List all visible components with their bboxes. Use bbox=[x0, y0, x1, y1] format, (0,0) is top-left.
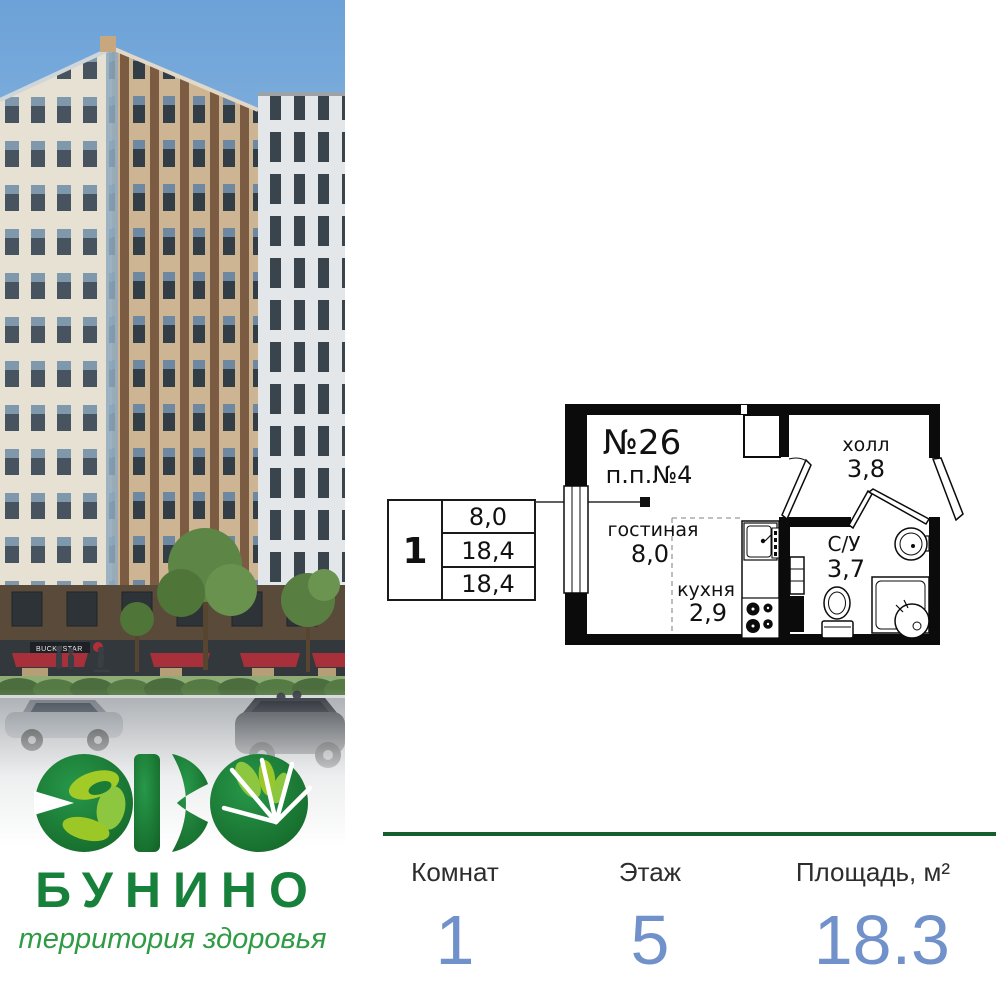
washbasin bbox=[895, 528, 929, 560]
brand-logo: БУНИНО территория здоровья bbox=[0, 750, 345, 954]
eco-letter-k bbox=[134, 754, 208, 852]
table-row3: 18,4 bbox=[461, 570, 514, 598]
area-dot bbox=[640, 497, 650, 507]
shower bbox=[872, 577, 929, 638]
table-row1: 8,0 bbox=[469, 503, 507, 531]
apartment-number: №26 bbox=[603, 423, 682, 463]
stat-rooms: Комнат 1 bbox=[390, 858, 520, 975]
brand-name: БУНИНО bbox=[10, 865, 345, 915]
table-row2: 18,4 bbox=[461, 537, 514, 565]
toilet bbox=[822, 587, 853, 638]
room-kitchen-label: кухня bbox=[677, 579, 735, 601]
eco-emblem-icon bbox=[34, 750, 312, 856]
stat-floor-label: Этаж bbox=[585, 858, 715, 887]
interior-door bbox=[782, 458, 811, 519]
kitchen-counter bbox=[742, 521, 779, 638]
window bbox=[564, 486, 588, 593]
brand-tagline: территория здоровья bbox=[0, 925, 345, 954]
eco-letter-e bbox=[34, 754, 133, 852]
room-hall-label: холл bbox=[842, 434, 889, 456]
stat-area: Площадь, м² 18.3 bbox=[718, 858, 950, 975]
wardrobe bbox=[744, 415, 780, 457]
eco-letter-o bbox=[210, 754, 310, 852]
bathroom-door bbox=[849, 489, 929, 528]
divider-line bbox=[383, 832, 996, 836]
utility-shaft bbox=[790, 557, 804, 632]
room-bathroom-label: С/У bbox=[828, 532, 861, 556]
stat-rooms-label: Комнат bbox=[390, 858, 520, 887]
stat-floor: Этаж 5 bbox=[585, 858, 715, 975]
dish-rack bbox=[772, 528, 779, 558]
stat-rooms-value: 1 bbox=[390, 905, 520, 975]
stat-floor-value: 5 bbox=[585, 905, 715, 975]
room-bathroom-area: 3,7 bbox=[827, 555, 865, 583]
floor-plan: 1 8,0 18,4 18,4 bbox=[380, 390, 1000, 660]
room-living-label: гостиная bbox=[608, 519, 699, 541]
white-tower bbox=[258, 92, 345, 648]
plan-code: п.п.№4 bbox=[606, 461, 693, 489]
room-kitchen-area: 2,9 bbox=[689, 599, 727, 627]
stat-area-value: 18.3 bbox=[718, 905, 950, 975]
table-rooms-count: 1 bbox=[402, 531, 427, 572]
building-photo: BUCKSSTAR bbox=[0, 0, 345, 1000]
apartment-listing-card: BUCKSSTAR bbox=[0, 0, 1000, 1000]
stove bbox=[742, 598, 779, 638]
room-hall-area: 3,8 bbox=[847, 455, 885, 483]
stat-area-label: Площадь, м² bbox=[718, 858, 950, 887]
room-living-area: 8,0 bbox=[631, 540, 669, 568]
entry-door bbox=[933, 458, 963, 520]
